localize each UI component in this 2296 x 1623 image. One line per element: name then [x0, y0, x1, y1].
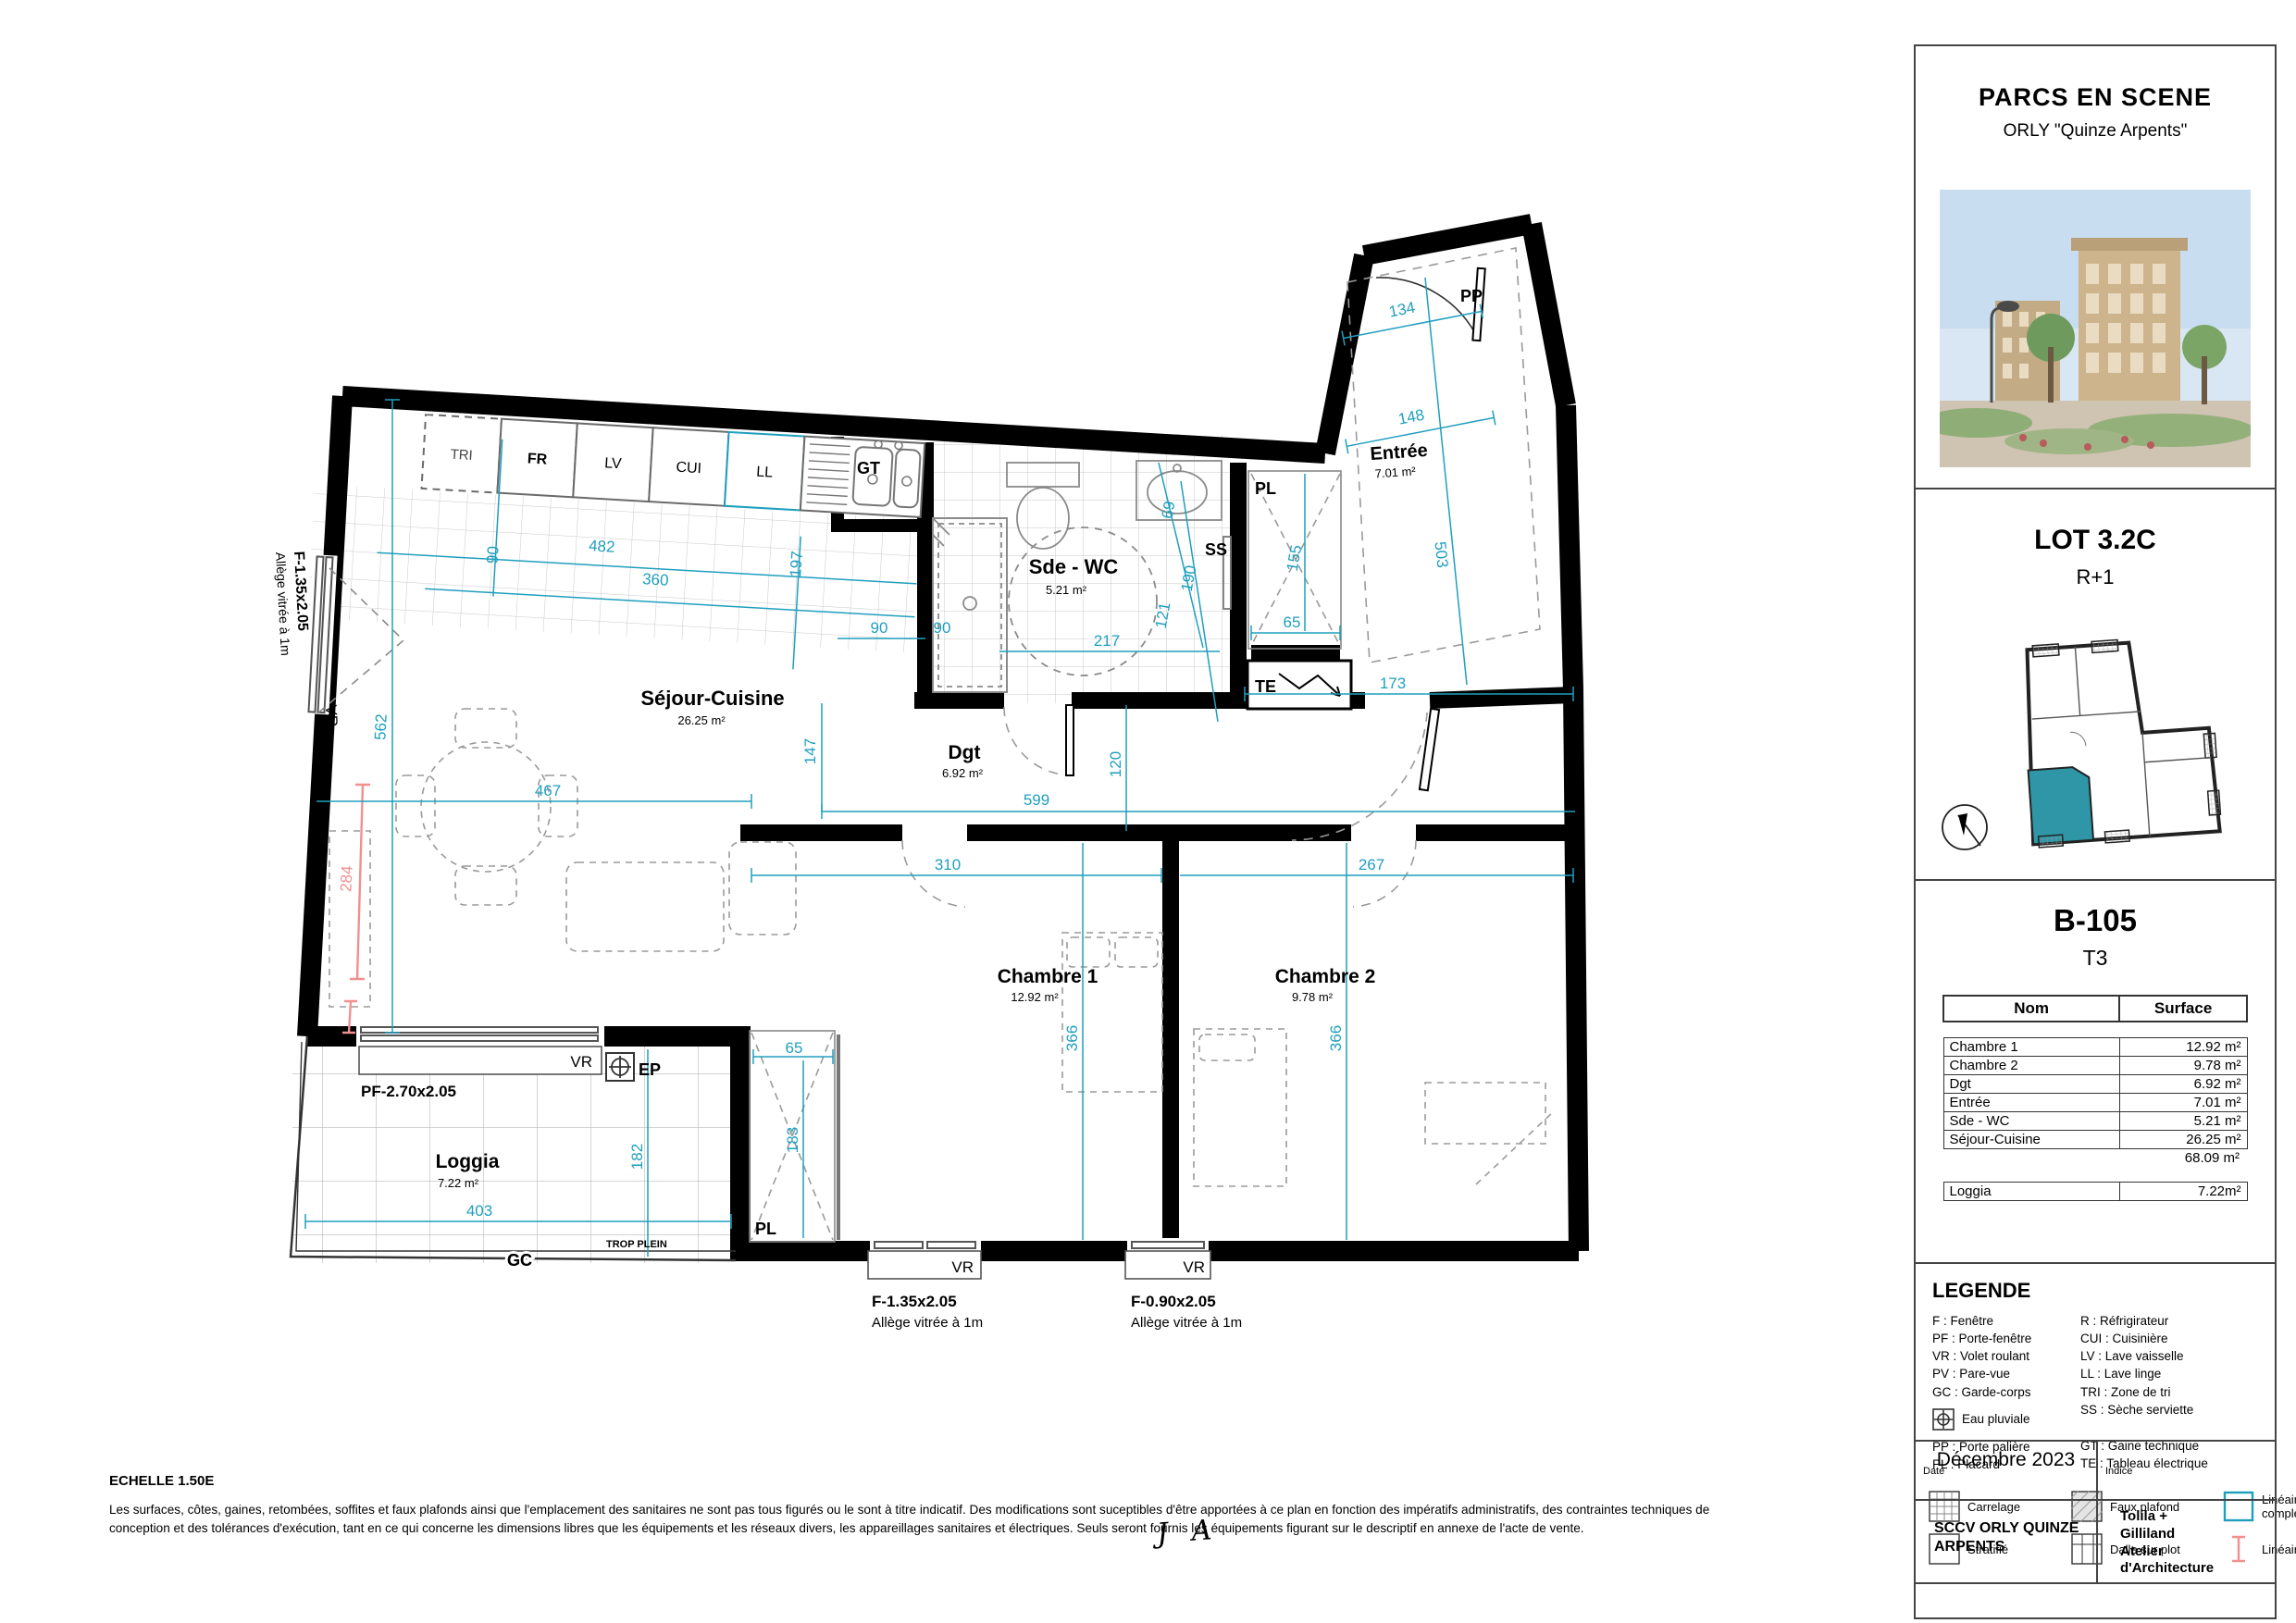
surface-table: Nom Surface Chambre 112.92 m² Chambre 29… — [1942, 995, 2248, 1201]
table-row: Chambre 29.78 m² — [1943, 1057, 2247, 1075]
dim-65-placard: 65 — [1284, 613, 1301, 631]
tag-ss: SS — [1205, 540, 1227, 559]
dim-69: 69 — [1159, 500, 1179, 520]
dim-360: 360 — [642, 570, 669, 589]
vr-label-ch2: VR — [1183, 1258, 1205, 1276]
unit-section: B-105 T3 Nom Surface Chambre 112.92 m² C… — [1916, 903, 2275, 1264]
table-row: Entrée7.01 m² — [1943, 1094, 2247, 1112]
allege-label-ch1: Allège vitrée à 1m — [872, 1315, 983, 1331]
room-area-sde: 5.21 m² — [1046, 583, 1087, 597]
dim-90-gt: 90 — [871, 619, 888, 637]
room-label-loggia: Loggia — [436, 1151, 500, 1172]
allege-label-ch2: Allège vitrée à 1m — [1131, 1315, 1242, 1331]
pf-label: PF-2.70x2.05 — [361, 1083, 456, 1100]
vr-label-ch1: VR — [951, 1258, 974, 1276]
table-row: Séjour-Cuisine26.25 m² — [1943, 1131, 2247, 1149]
room-label-sde: Sde - WC — [1029, 555, 1119, 578]
indice-label: Indice — [2105, 1466, 2132, 1477]
appliance-label-fr: FR — [527, 451, 548, 467]
project-rendering — [1940, 190, 2251, 467]
dim-503: 503 — [1432, 540, 1452, 568]
tag-pl-ch1: PL — [755, 1220, 776, 1238]
room-label-ch1: Chambre 1 — [998, 966, 1098, 987]
tag-ep: EP — [639, 1060, 661, 1079]
col-header-surface: Surface — [2119, 996, 2247, 1022]
dim-173: 173 — [1380, 675, 1406, 692]
floor-fills — [292, 224, 1579, 1263]
table-row: Dgt6.92 m² — [1943, 1075, 2247, 1094]
legend-item: SS : Sèche serviette — [2080, 1401, 2256, 1419]
legend-item: R : Réfrigirateur — [2080, 1312, 2256, 1330]
f135-label-left: F-1.35x2.05 — [291, 551, 310, 631]
lot-title: LOT 3.2C — [1916, 525, 2275, 556]
dim-90-kitchen: 90 — [483, 546, 502, 564]
lot-level: R+1 — [1916, 565, 2275, 589]
tag-pl-entree: PL — [1255, 479, 1276, 498]
title-panel: PARCS EN SCENE ORLY "Quinze Arpents" — [1914, 44, 2277, 1619]
key-plan-unit-highlight — [2029, 766, 2093, 844]
north-compass — [1932, 795, 1997, 860]
legend-item: Eau pluviale — [1962, 1410, 2030, 1428]
dim-284-red: 284 — [337, 865, 355, 892]
legend-item: LL : Lave linge — [2080, 1365, 2256, 1382]
table-row: Chambre 112.92 m² — [1943, 1038, 2247, 1057]
dim-147: 147 — [801, 738, 819, 764]
legend-item: TRI : Zone de tri — [2080, 1383, 2256, 1401]
legend-item: F : Fenêtre — [1932, 1312, 2080, 1330]
dim-599: 599 — [1024, 791, 1049, 809]
dim-267: 267 — [1359, 856, 1384, 873]
vr-box-loggia — [359, 1047, 602, 1074]
room-area-loggia: 7.22 m² — [438, 1176, 479, 1190]
allege-label-left: Allège vitrée à 1m — [273, 551, 293, 656]
room-label-ch2: Chambre 2 — [1275, 966, 1376, 987]
table-row-loggia: Loggia7.22m² — [1943, 1183, 2247, 1201]
room-area-dgt: 6.92 m² — [942, 766, 984, 780]
appliance-label-lv: LV — [604, 455, 623, 472]
dim-366-ch2: 366 — [1327, 1025, 1345, 1051]
legend-item: CUI : Cuisinière — [2080, 1330, 2256, 1347]
dim-366-ch1: 366 — [1063, 1025, 1081, 1051]
dim-183: 183 — [784, 1127, 801, 1153]
disclaimer-text: Les surfaces, côtes, gaines, retombées, … — [109, 1501, 1766, 1537]
col-header-nom: Nom — [1943, 996, 2119, 1022]
eau-pluviale-icon — [1932, 1408, 1955, 1431]
tag-trop-plein: TROP PLEIN — [606, 1239, 667, 1250]
tag-te: TE — [1255, 677, 1276, 696]
vr-label-left: VR — [322, 704, 341, 727]
architect-line: d'Architecture — [2120, 1560, 2275, 1578]
tag-gt: GT — [857, 459, 880, 477]
surface-total: 68.09 m² — [2119, 1149, 2247, 1168]
dim-65-ch-placard: 65 — [786, 1039, 803, 1057]
project-title: PARCS EN SCENE — [1916, 83, 2275, 112]
room-area-ch2: 9.78 m² — [1292, 990, 1334, 1004]
room-label-dgt: Dgt — [949, 742, 981, 763]
client-name: SCCV ORLY QUINZE ARPENTS — [1934, 1519, 2096, 1556]
f135-label-bottom: F-1.35x2.05 — [872, 1293, 957, 1310]
architect-line: Tolila + — [2120, 1508, 2275, 1526]
handwritten-initials: J A — [1156, 1514, 1221, 1551]
legend-item: VR : Volet roulant — [1932, 1347, 2080, 1365]
dim-482: 482 — [589, 537, 615, 556]
legend-item: LV : Lave vaisselle — [2080, 1347, 2256, 1365]
table-row: Sde - WC5.21 m² — [1943, 1112, 2247, 1131]
room-label-entree: Entrée — [1370, 440, 1429, 465]
dim-182: 182 — [628, 1144, 646, 1170]
architect-line: Gilliland — [2120, 1526, 2275, 1543]
room-area-ch1: 12.92 m² — [1011, 990, 1059, 1004]
surface-table-header: Nom Surface — [1943, 996, 2247, 1022]
room-area-sejour: 26.25 m² — [677, 713, 726, 727]
titleblock: Date Décembre 2023 Indice SCCV ORLY QUIN… — [1914, 1440, 2277, 1619]
architect-name: Tolila + Gilliland Atelier d'Architectur… — [2120, 1508, 2275, 1578]
dim-403: 403 — [466, 1202, 492, 1220]
vr-label-loggia: VR — [570, 1053, 592, 1071]
table-total-row: 68.09 m² — [1943, 1149, 2247, 1168]
project-section: PARCS EN SCENE ORLY "Quinze Arpents" — [1916, 83, 2275, 489]
dim-120: 120 — [1107, 751, 1124, 777]
project-subtitle: ORLY "Quinze Arpents" — [1916, 121, 2275, 142]
dim-562: 562 — [371, 713, 390, 740]
appliance-label-tri: TRI — [450, 447, 473, 464]
dim-90-sde: 90 — [934, 619, 951, 637]
appliance-label-ll: LL — [756, 465, 774, 481]
scale-label: ECHELLE 1.50E — [109, 1473, 214, 1489]
unit-type: T3 — [1916, 946, 2275, 971]
legend-item: GC : Garde-corps — [1932, 1383, 2080, 1401]
date-label: Date — [1923, 1466, 1944, 1477]
room-area-entree: 7.01 m² — [1374, 464, 1417, 480]
tag-gc-front: GC — [507, 1251, 532, 1270]
key-plan — [1962, 626, 2240, 867]
dim-217: 217 — [1094, 632, 1120, 650]
lot-section: LOT 3.2C R+1 — [1916, 525, 2275, 881]
f090-label: F-0.90x2.05 — [1131, 1293, 1216, 1310]
dim-310: 310 — [935, 856, 961, 873]
tag-pp: PP — [1460, 287, 1483, 305]
unit-id: B-105 — [1916, 903, 2275, 938]
legend-item: PF : Porte-fenêtre — [1932, 1330, 2080, 1347]
appliance-label-cui: CUI — [676, 460, 701, 477]
legend-title: LEGENDE — [1932, 1279, 2275, 1303]
room-label-sejour: Séjour-Cuisine — [640, 687, 784, 710]
architect-line: Atelier — [2120, 1543, 2275, 1561]
dim-467: 467 — [535, 782, 561, 799]
floor-plan: TRI FR LV CUI LL — [0, 0, 1906, 1443]
dim-197: 197 — [787, 551, 806, 578]
legend-item: PV : Pare-vue — [1932, 1365, 2080, 1382]
